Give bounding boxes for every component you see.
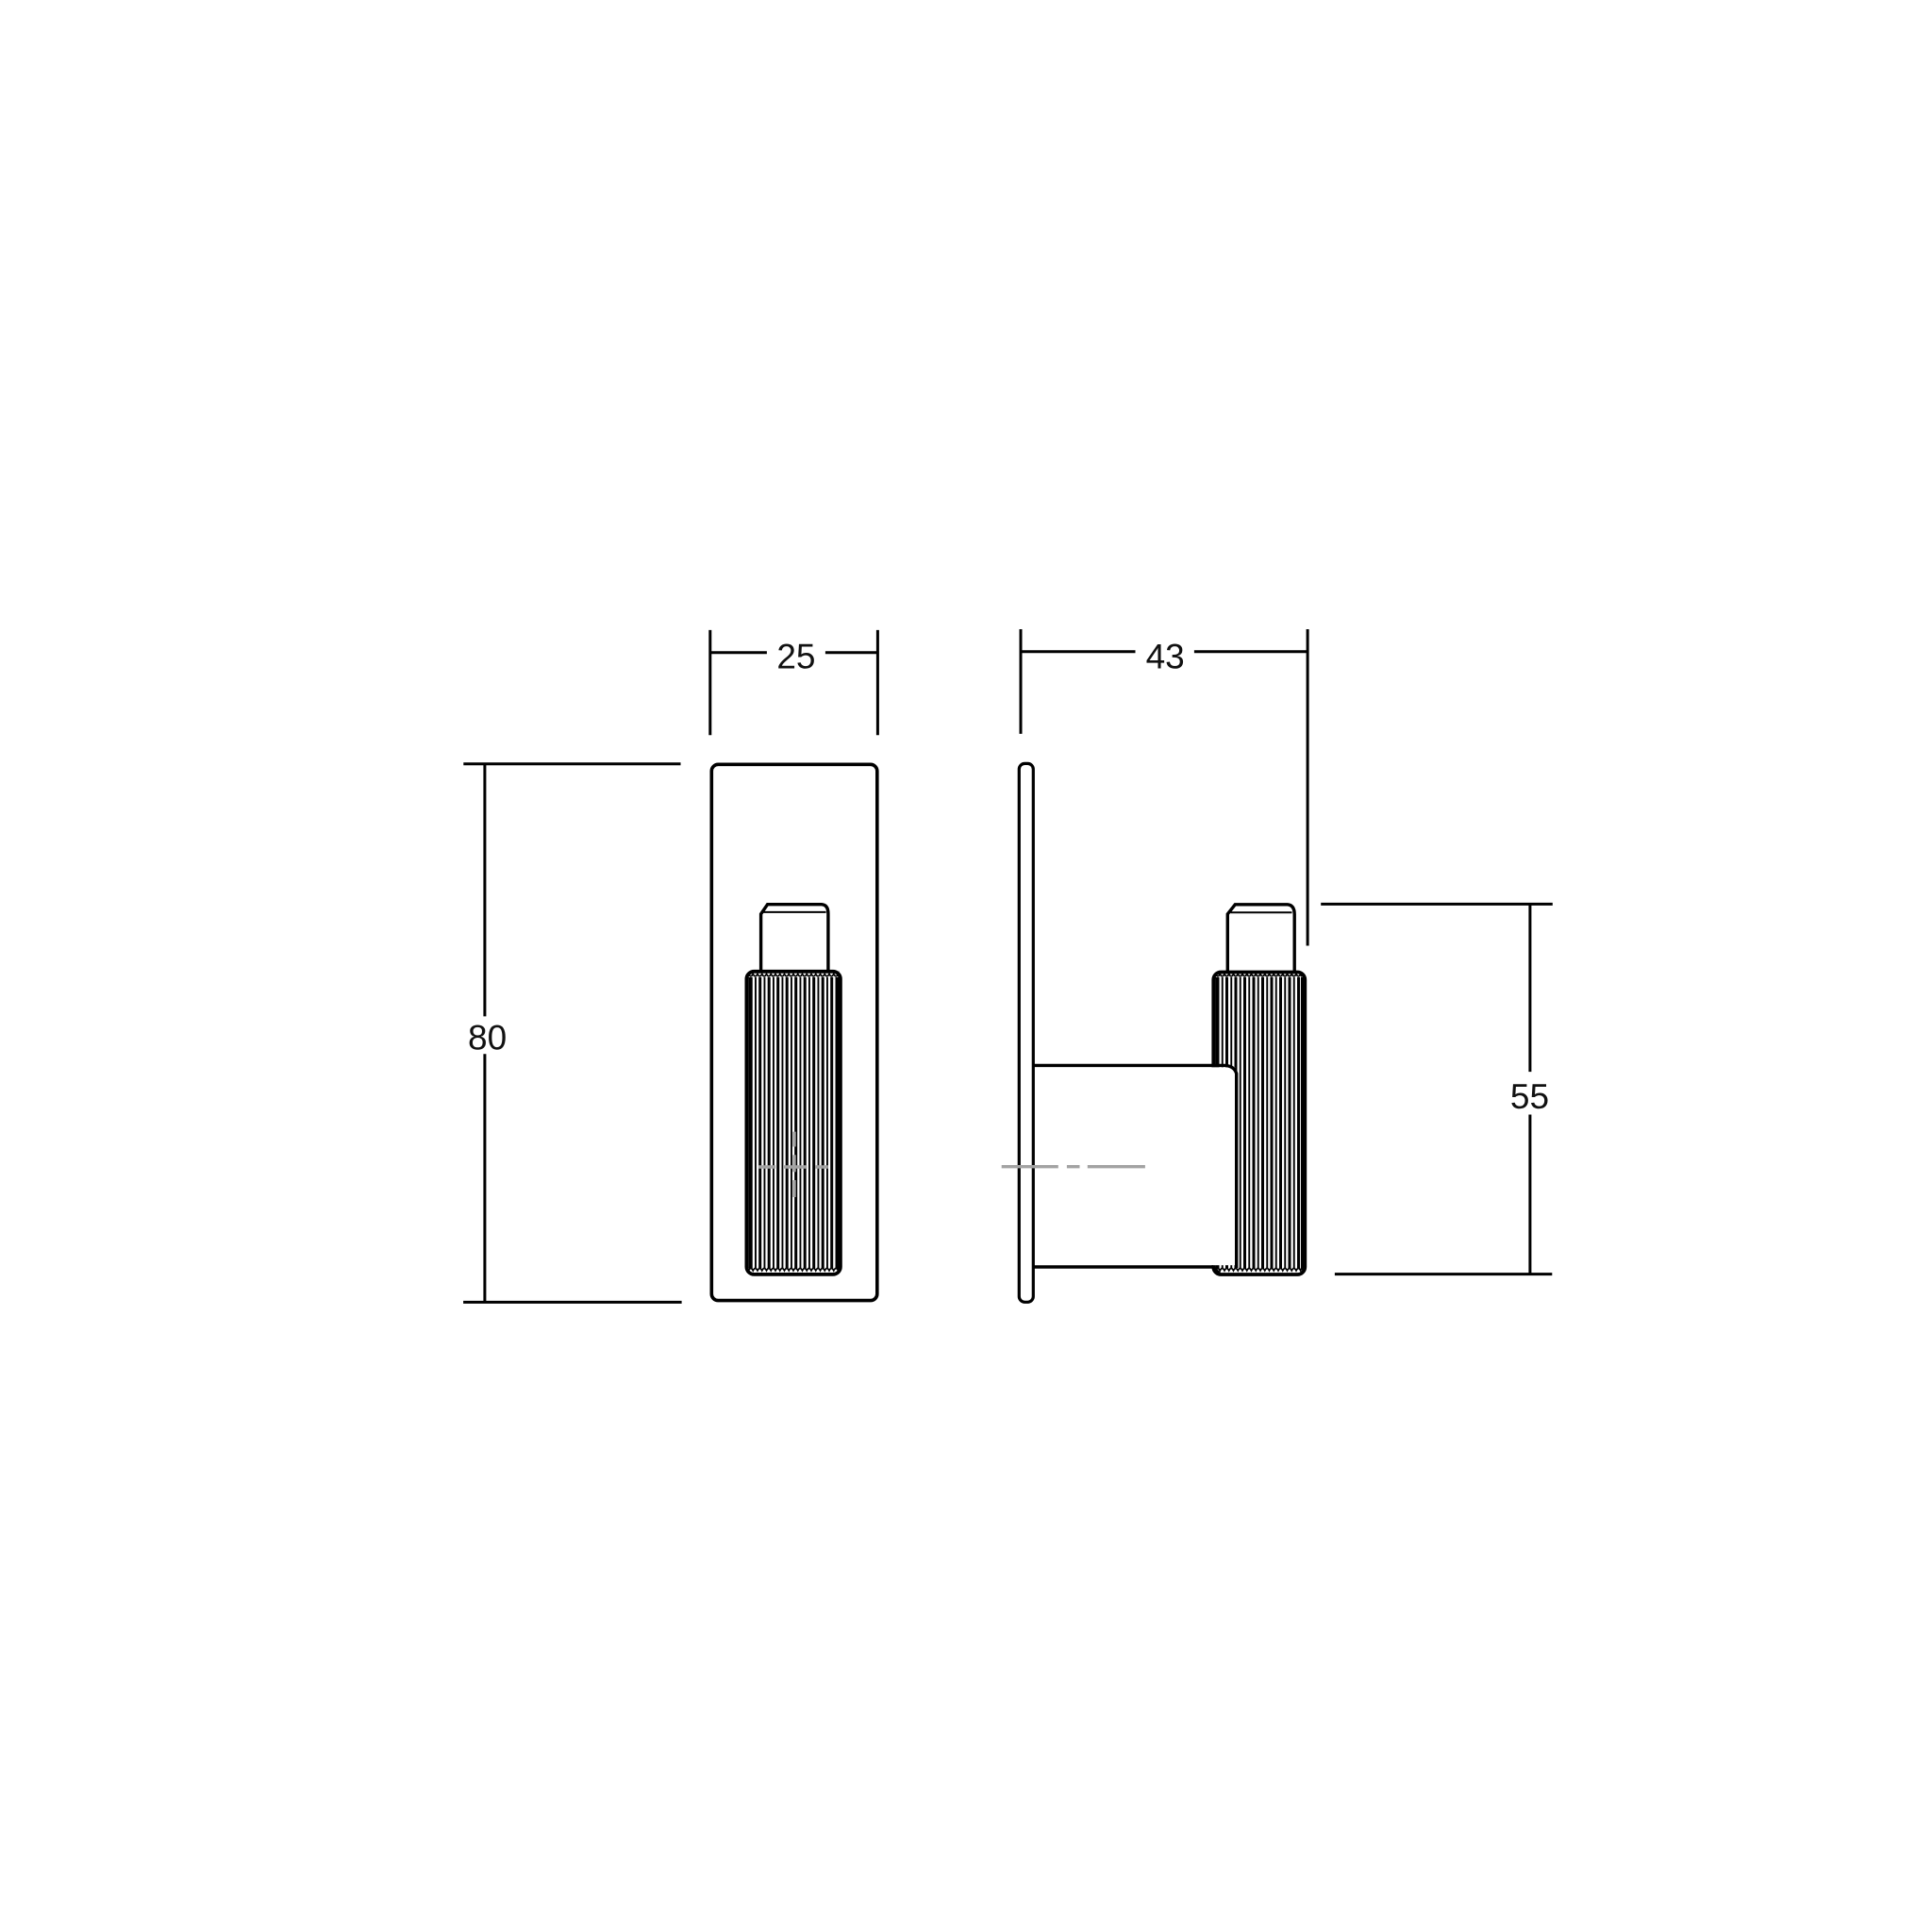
svg-text:43: 43 [1146,638,1185,676]
svg-text:55: 55 [1510,1077,1549,1116]
svg-text:80: 80 [468,1019,507,1058]
svg-text:25: 25 [776,638,815,676]
